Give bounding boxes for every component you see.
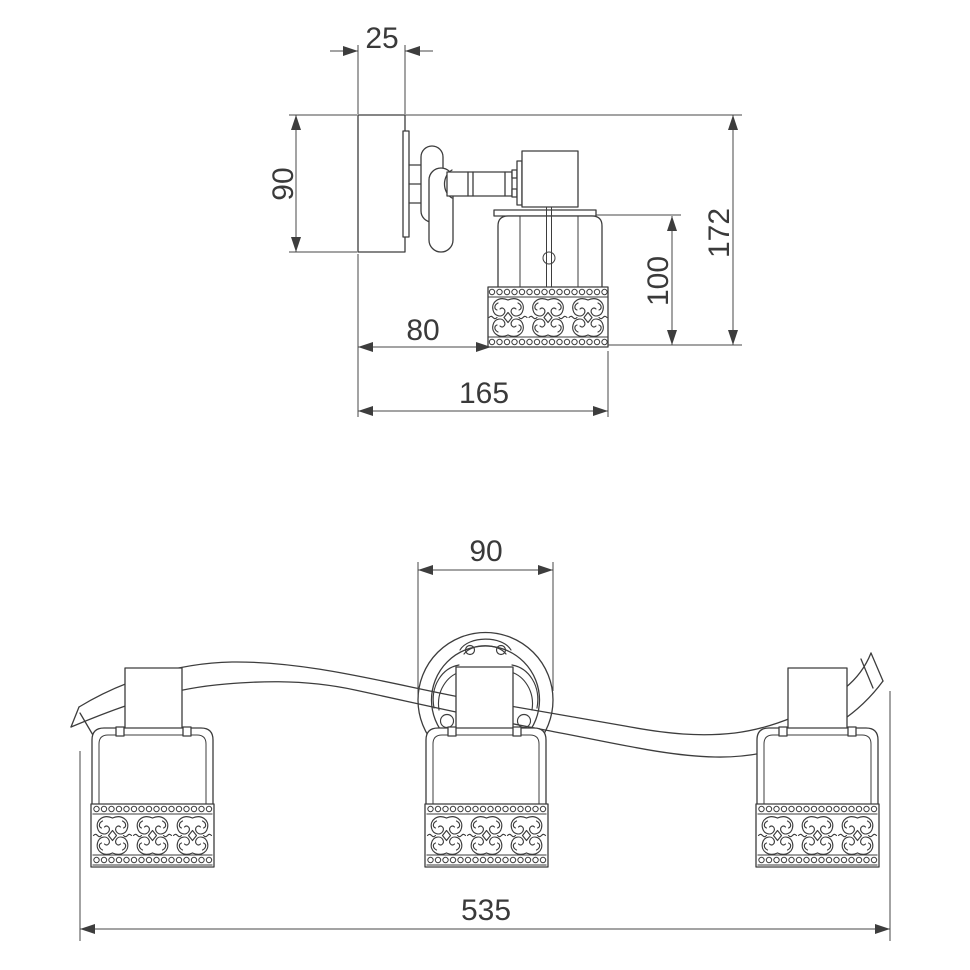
dim-label-total-projection: 165 — [459, 377, 509, 410]
dim-arrow-icon — [418, 565, 433, 575]
dim-label-wall-to-shade: 80 — [406, 314, 439, 347]
dimension-bracket-depth: 25 — [330, 22, 433, 114]
dim-label-total-width: 535 — [461, 894, 511, 927]
ornament-band-center — [425, 804, 548, 867]
dimension-wall-to-shade: 80 — [358, 314, 491, 352]
dim-label-bracket-depth: 25 — [365, 22, 398, 55]
technical-drawing-page: 25 90 80 165 — [0, 0, 970, 970]
shade-collar — [494, 210, 596, 216]
dim-arrow-icon — [291, 115, 301, 130]
dim-arrow-icon — [80, 924, 95, 934]
dimension-bracket-height: 90 — [267, 115, 357, 252]
dim-label-bracket-height: 90 — [267, 167, 300, 200]
ornament-band-side — [488, 287, 608, 347]
front-view: 90 535 — [71, 535, 890, 941]
lamp-body — [522, 151, 578, 207]
lamp-stem-left — [125, 668, 182, 733]
swivel-joint — [421, 146, 453, 252]
dim-arrow-icon — [358, 406, 373, 416]
lamp-stem-center — [456, 667, 513, 733]
dim-arrow-icon — [728, 115, 738, 130]
lamp-shade-side — [488, 207, 608, 347]
lamp-dimension-drawing: 25 90 80 165 — [0, 0, 970, 970]
dim-label-shade-height: 100 — [642, 256, 675, 306]
dim-arrow-icon — [667, 216, 677, 231]
dim-arrow-icon — [343, 46, 358, 56]
dim-arrow-icon — [405, 46, 420, 56]
dim-arrow-icon — [593, 406, 608, 416]
ornament-band-left — [91, 804, 214, 867]
side-view: 25 90 80 165 — [267, 22, 742, 417]
dim-arrow-icon — [358, 342, 373, 352]
dim-label-medallion-diameter: 90 — [469, 535, 502, 568]
dim-label-total-height: 172 — [703, 208, 736, 258]
lamp-stem-right — [788, 668, 847, 730]
dim-arrow-icon — [728, 330, 738, 345]
lamp-shade-center — [425, 727, 548, 867]
dim-arrow-icon — [667, 330, 677, 345]
dim-arrow-icon — [538, 565, 553, 575]
dim-arrow-icon — [875, 924, 890, 934]
ornament-band-right — [756, 804, 879, 867]
mount-bracket — [403, 131, 409, 237]
lamp-shade-right — [756, 727, 879, 867]
lamp-shade-left — [91, 727, 214, 867]
dim-arrow-icon — [291, 237, 301, 252]
swivel-arm — [447, 161, 522, 205]
wall-plate — [358, 115, 405, 252]
